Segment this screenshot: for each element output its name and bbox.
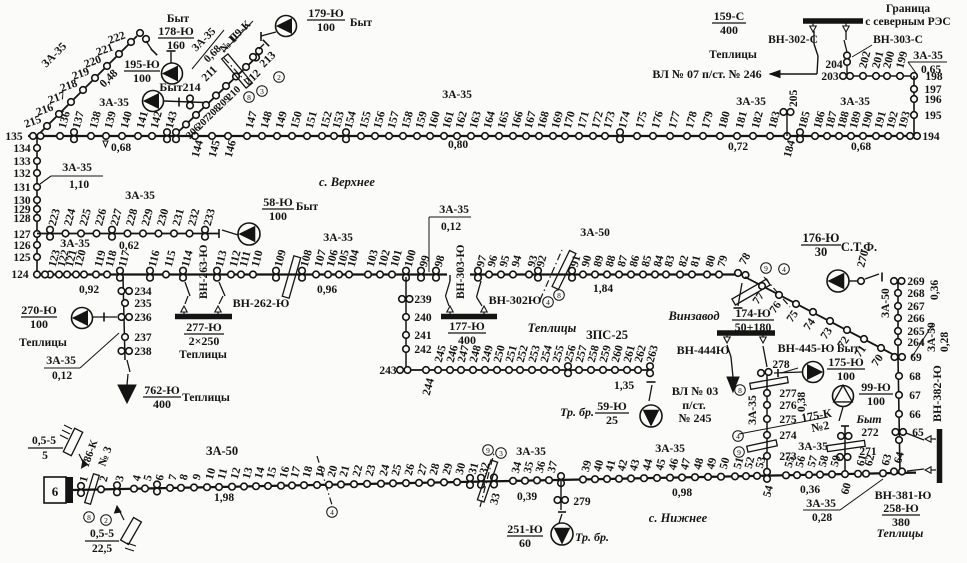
svg-text:0,98: 0,98 bbox=[672, 487, 692, 499]
svg-text:6: 6 bbox=[52, 484, 59, 499]
svg-text:ЗА-50: ЗА-50 bbox=[206, 444, 238, 458]
svg-text:0,62: 0,62 bbox=[119, 240, 139, 252]
svg-text:4: 4 bbox=[330, 508, 334, 517]
svg-text:195: 195 bbox=[924, 110, 942, 122]
svg-text:8: 8 bbox=[557, 291, 561, 300]
svg-text:272: 272 bbox=[861, 427, 879, 439]
svg-text:0,36: 0,36 bbox=[929, 280, 941, 300]
svg-text:276: 276 bbox=[779, 400, 797, 412]
svg-text:9: 9 bbox=[764, 264, 768, 273]
svg-text:205: 205 bbox=[788, 90, 800, 108]
svg-text:239: 239 bbox=[414, 294, 432, 306]
svg-text:ЗА-35: ЗА-35 bbox=[806, 498, 836, 510]
svg-text:ВН-381-Ю: ВН-381-Ю bbox=[875, 488, 932, 502]
svg-text:ЗА-50: ЗА-50 bbox=[580, 227, 610, 239]
svg-text:264: 264 bbox=[907, 337, 925, 349]
svg-text:277: 277 bbox=[779, 388, 797, 400]
svg-text:100: 100 bbox=[317, 20, 335, 34]
svg-text:268: 268 bbox=[907, 288, 925, 300]
svg-text:0,68: 0,68 bbox=[111, 142, 131, 154]
svg-text:ЗА-35: ЗА-35 bbox=[439, 204, 469, 216]
svg-text:4: 4 bbox=[782, 265, 786, 274]
svg-text:с северным РЭС: с северным РЭС bbox=[865, 16, 950, 28]
svg-text:237: 237 bbox=[134, 332, 152, 344]
svg-text:с. Нижнее: с. Нижнее bbox=[649, 511, 708, 525]
svg-text:270-Ю: 270-Ю bbox=[21, 303, 57, 317]
svg-text:0,92: 0,92 bbox=[79, 284, 99, 296]
svg-text:204: 204 bbox=[825, 59, 843, 71]
svg-text:ВН-262-Ю: ВН-262-Ю bbox=[233, 296, 290, 310]
svg-text:0,12: 0,12 bbox=[52, 370, 72, 382]
svg-text:0,5-5: 0,5-5 bbox=[90, 528, 114, 540]
svg-text:ЗА-50: ЗА-50 bbox=[880, 288, 892, 318]
svg-text:134: 134 bbox=[13, 143, 31, 155]
svg-text:258-Ю: 258-Ю bbox=[883, 501, 919, 515]
svg-text:126: 126 bbox=[13, 240, 31, 252]
svg-text:159-С: 159-С bbox=[714, 9, 745, 23]
svg-text:ВН-302-С: ВН-302-С bbox=[768, 34, 818, 46]
svg-text:0,28: 0,28 bbox=[939, 332, 951, 352]
svg-text:266: 266 bbox=[907, 313, 925, 325]
svg-text:30: 30 bbox=[815, 245, 828, 259]
svg-text:58-Ю: 58-Ю bbox=[263, 195, 293, 209]
svg-text:0,36: 0,36 bbox=[800, 484, 820, 496]
svg-text:2: 2 bbox=[104, 516, 108, 525]
svg-text:ЗА-35: ЗА-35 bbox=[62, 162, 92, 174]
svg-text:100: 100 bbox=[133, 71, 151, 85]
svg-text:ЗПС-25: ЗПС-25 bbox=[586, 328, 628, 342]
svg-text:269: 269 bbox=[907, 276, 925, 288]
svg-text:0,38: 0,38 bbox=[796, 392, 808, 412]
svg-text:50+180: 50+180 bbox=[735, 320, 772, 334]
svg-text:179-Ю: 179-Ю bbox=[308, 6, 344, 20]
svg-text:400: 400 bbox=[720, 23, 738, 37]
svg-text:ЗА-35: ЗА-35 bbox=[99, 97, 129, 109]
svg-text:4: 4 bbox=[736, 432, 740, 441]
svg-text:277-Ю: 277-Ю bbox=[186, 320, 222, 334]
svg-text:0,96: 0,96 bbox=[317, 284, 337, 296]
svg-text:0,68: 0,68 bbox=[851, 141, 871, 153]
svg-text:Теплицы: Теплицы bbox=[528, 321, 577, 335]
svg-text:9: 9 bbox=[486, 446, 490, 455]
svg-text:Тр. бр.: Тр. бр. bbox=[560, 405, 594, 419]
svg-text:3: 3 bbox=[260, 87, 264, 96]
svg-text:238: 238 bbox=[134, 346, 152, 358]
svg-text:278: 278 bbox=[772, 359, 790, 371]
svg-text:п/ст.: п/ст. bbox=[682, 398, 706, 412]
svg-text:22,5: 22,5 bbox=[92, 543, 112, 555]
svg-text:1,98: 1,98 bbox=[214, 492, 234, 504]
svg-text:0,65: 0,65 bbox=[921, 64, 941, 76]
svg-text:Теплицы: Теплицы bbox=[709, 49, 757, 61]
svg-text:ВЛ № 03: ВЛ № 03 bbox=[672, 384, 719, 398]
svg-text:128: 128 bbox=[13, 213, 31, 225]
svg-text:ЗА-35: ЗА-35 bbox=[60, 238, 90, 250]
svg-text:8: 8 bbox=[87, 513, 91, 522]
svg-text:2×250: 2×250 bbox=[189, 334, 220, 348]
svg-text:3: 3 bbox=[499, 449, 503, 458]
svg-text:132: 132 bbox=[13, 168, 31, 180]
svg-text:ЗА-50: ЗА-50 bbox=[926, 322, 938, 352]
svg-text:267: 267 bbox=[907, 301, 925, 313]
svg-text:236: 236 bbox=[134, 312, 152, 324]
svg-text:0,5-5: 0,5-5 bbox=[32, 435, 56, 447]
svg-text:ЗА-35: ЗА-35 bbox=[747, 395, 759, 425]
svg-text:60: 60 bbox=[519, 536, 531, 550]
svg-text:8: 8 bbox=[247, 93, 251, 102]
svg-text:ВН-303-Ю: ВН-303-Ю bbox=[455, 244, 467, 299]
svg-text:124: 124 bbox=[11, 269, 29, 281]
svg-text:100: 100 bbox=[269, 209, 287, 223]
svg-text:ЗА-35: ЗА-35 bbox=[655, 443, 685, 455]
svg-text:762-Ю: 762-Ю bbox=[144, 383, 180, 397]
svg-text:59-Ю: 59-Ю bbox=[597, 399, 627, 413]
svg-text:240: 240 bbox=[414, 312, 432, 324]
svg-text:2: 2 bbox=[277, 73, 281, 82]
svg-text:Теплицы: Теплицы bbox=[19, 337, 67, 349]
svg-text:25: 25 bbox=[606, 413, 618, 427]
svg-text:С.Т.Ф.: С.Т.Ф. bbox=[841, 240, 877, 254]
svg-text:ВН-302Ю: ВН-302Ю bbox=[489, 293, 542, 307]
svg-text:243: 243 bbox=[379, 365, 397, 377]
svg-text:1,10: 1,10 bbox=[69, 179, 89, 191]
svg-text:Теплицы: Теплицы bbox=[182, 392, 230, 404]
svg-text:№ 245: № 245 bbox=[678, 411, 711, 425]
svg-text:4: 4 bbox=[546, 298, 550, 307]
svg-text:66: 66 bbox=[909, 409, 921, 421]
svg-text:99-Ю: 99-Ю bbox=[861, 380, 891, 394]
svg-text:Винзавод: Винзавод bbox=[667, 309, 719, 323]
svg-text:1,35: 1,35 bbox=[614, 380, 634, 392]
svg-text:0,28: 0,28 bbox=[812, 512, 832, 524]
svg-text:178-Ю: 178-Ю bbox=[158, 24, 194, 38]
svg-text:125: 125 bbox=[13, 252, 31, 264]
svg-text:234: 234 bbox=[134, 286, 152, 298]
svg-text:67: 67 bbox=[909, 390, 921, 402]
svg-text:ЗА-35: ЗА-35 bbox=[442, 89, 472, 101]
svg-text:ВЛ № 07 п/ст. № 246: ВЛ № 07 п/ст. № 246 bbox=[652, 67, 761, 81]
svg-text:ЗА-35: ЗА-35 bbox=[323, 232, 353, 244]
svg-text:0,72: 0,72 bbox=[728, 141, 748, 153]
svg-text:9: 9 bbox=[737, 448, 741, 457]
svg-text:0,39: 0,39 bbox=[517, 491, 537, 503]
svg-text:с. Верхнее: с. Верхнее bbox=[319, 175, 375, 189]
svg-text:133: 133 bbox=[13, 156, 31, 168]
svg-text:400: 400 bbox=[153, 397, 171, 411]
svg-text:174-Ю: 174-Ю bbox=[735, 306, 771, 320]
svg-text:0,12: 0,12 bbox=[441, 221, 461, 233]
svg-text:1,84: 1,84 bbox=[593, 283, 613, 295]
svg-text:Теплицы: Теплицы bbox=[877, 526, 924, 540]
svg-text:235: 235 bbox=[134, 298, 152, 310]
svg-text:ЗА-35: ЗА-35 bbox=[913, 50, 943, 62]
svg-text:241: 241 bbox=[414, 330, 432, 342]
svg-text:279: 279 bbox=[573, 496, 591, 508]
svg-text:ЗА-35: ЗА-35 bbox=[46, 355, 76, 367]
svg-text:194: 194 bbox=[922, 131, 940, 143]
svg-text:Тр. бр.: Тр. бр. bbox=[575, 530, 609, 544]
svg-text:Быт: Быт bbox=[350, 17, 373, 29]
svg-text:ВН-445-Ю: ВН-445-Ю bbox=[778, 341, 835, 355]
svg-text:175-Ю: 175-Ю bbox=[828, 355, 864, 369]
svg-text:ВН-444Ю: ВН-444Ю bbox=[677, 343, 730, 357]
svg-text:ВН-303-С: ВН-303-С bbox=[873, 34, 923, 46]
svg-text:100: 100 bbox=[867, 394, 885, 408]
svg-text:131: 131 bbox=[13, 182, 31, 194]
svg-text:251-Ю: 251-Ю bbox=[507, 522, 543, 536]
svg-text:ЗА-35: ЗА-35 bbox=[798, 441, 828, 453]
svg-text:ВН-263-Ю: ВН-263-Ю bbox=[198, 244, 210, 299]
svg-text:176-Ю: 176-Ю bbox=[803, 231, 840, 245]
svg-text:Быт: Быт bbox=[296, 201, 319, 213]
svg-text:Быт: Быт bbox=[855, 412, 881, 426]
svg-text:0,80: 0,80 bbox=[448, 139, 468, 151]
svg-text:5: 5 bbox=[42, 450, 48, 462]
svg-text:Граница: Граница bbox=[886, 3, 931, 15]
svg-text:195-Ю: 195-Ю bbox=[124, 57, 160, 71]
svg-text:ЗА-35: ЗА-35 bbox=[736, 96, 766, 108]
svg-text:100: 100 bbox=[837, 369, 855, 383]
svg-text:68: 68 bbox=[909, 371, 921, 383]
svg-text:Теплицы: Теплицы bbox=[179, 349, 227, 361]
svg-text:ЗА-35: ЗА-35 bbox=[516, 446, 546, 458]
svg-text:274: 274 bbox=[779, 430, 797, 442]
svg-text:203: 203 bbox=[821, 71, 839, 83]
svg-text:196: 196 bbox=[924, 94, 942, 106]
svg-text:Быт214: Быт214 bbox=[159, 80, 200, 94]
svg-text:135: 135 bbox=[5, 131, 23, 143]
svg-text:160: 160 bbox=[167, 38, 185, 52]
svg-text:8: 8 bbox=[738, 386, 742, 395]
svg-text:ЗА-35: ЗА-35 bbox=[125, 190, 155, 202]
svg-text:100: 100 bbox=[30, 317, 48, 331]
svg-text:242: 242 bbox=[414, 344, 432, 356]
svg-text:ЗА-35: ЗА-35 bbox=[840, 96, 870, 108]
svg-text:ВН-382-Ю: ВН-382-Ю bbox=[930, 365, 944, 422]
svg-text:177-Ю: 177-Ю bbox=[449, 319, 485, 333]
svg-text:69: 69 bbox=[910, 352, 922, 364]
